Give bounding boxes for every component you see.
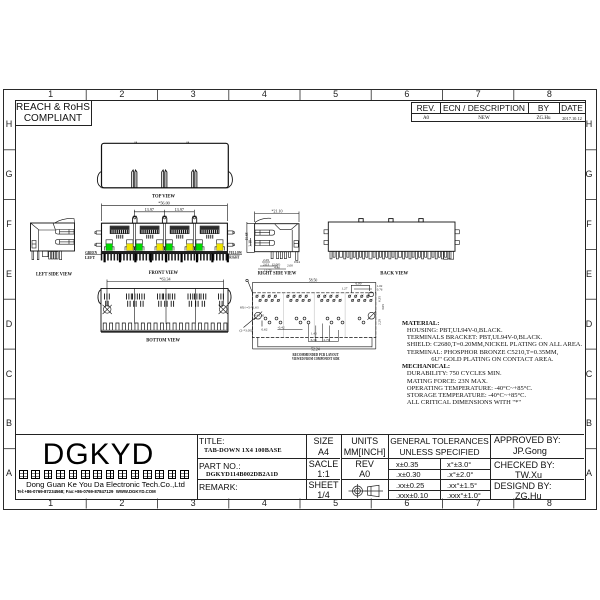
svg-text:TOP VIEW: TOP VIEW <box>152 194 175 200</box>
svg-text:0.76: 0.76 <box>377 288 383 292</box>
svg-text:VIEWED FROM COMPONENT SIDE: VIEWED FROM COMPONENT SIDE <box>292 357 340 361</box>
svg-text:58.50: 58.50 <box>309 279 318 283</box>
svg-text:11.68: 11.68 <box>245 232 249 240</box>
svg-text:2.03: 2.03 <box>263 262 269 266</box>
svg-text:BOTTOM VIEW: BOTTOM VIEW <box>146 338 180 344</box>
svg-text:0.94: 0.94 <box>294 260 300 264</box>
svg-text:LEFT: LEFT <box>85 255 95 260</box>
svg-text:-0.42: -0.42 <box>278 326 285 330</box>
svg-text:(2-*3.05): (2-*3.05) <box>240 329 253 333</box>
svg-text:52.24: 52.24 <box>311 347 320 351</box>
svg-text:2.29: 2.29 <box>378 319 382 325</box>
svg-text:*21.10: *21.10 <box>272 209 283 214</box>
svg-text:3.18: 3.18 <box>248 240 252 246</box>
svg-text:RIGHT SIDE VIEW: RIGHT SIDE VIEW <box>258 272 297 277</box>
svg-text:13.97: 13.97 <box>145 207 154 212</box>
svg-text:*63.34: *63.34 <box>160 277 171 282</box>
svg-text:6.36: 6.36 <box>311 338 317 342</box>
svg-text:2.00: 2.00 <box>287 263 293 267</box>
svg-text:RIGHT: RIGHT <box>229 254 239 259</box>
svg-text:2.70: 2.70 <box>324 338 330 342</box>
svg-text:0.62: 0.62 <box>262 327 268 331</box>
svg-text:13.97: 13.97 <box>175 207 184 212</box>
svg-text:8X○=5-*1.63: 8X○=5-*1.63 <box>240 306 259 310</box>
svg-text:3.05: 3.05 <box>381 304 385 310</box>
svg-text:FRONT VIEW: FRONT VIEW <box>149 270 179 276</box>
svg-text:–5-*3.20: –5-*3.20 <box>251 314 264 318</box>
svg-text:BACK VIEW: BACK VIEW <box>380 271 408 277</box>
svg-text:1.43: 1.43 <box>311 332 317 336</box>
svg-text:4.40: 4.40 <box>274 265 280 269</box>
svg-text:1.27: 1.27 <box>342 286 348 290</box>
svg-text:LEFT SIDE VIEW: LEFT SIDE VIEW <box>36 273 72 278</box>
svg-text:6.00: 6.00 <box>356 282 362 286</box>
svg-text:*56.00: *56.00 <box>158 201 170 206</box>
svg-text:6.35: 6.35 <box>378 296 382 302</box>
